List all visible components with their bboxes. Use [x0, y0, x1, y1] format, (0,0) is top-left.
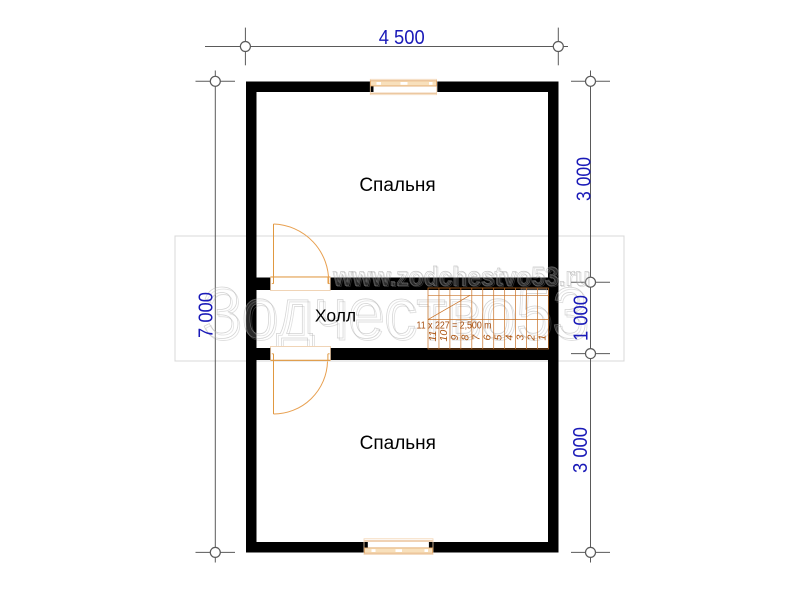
svg-text:3 000: 3 000	[570, 427, 592, 473]
svg-text:4 500: 4 500	[379, 27, 425, 49]
svg-text:1 000: 1 000	[571, 295, 593, 341]
svg-text:7 000: 7 000	[196, 292, 218, 338]
svg-text:Зодчество53: Зодчество53	[202, 274, 588, 354]
svg-text:Спальня: Спальня	[359, 175, 435, 196]
svg-text:3 000: 3 000	[574, 157, 596, 201]
svg-text:11 x 227 = 2,500 m: 11 x 227 = 2,500 m	[417, 321, 492, 332]
svg-text:1: 1	[536, 335, 548, 341]
svg-text:Холл: Холл	[315, 306, 356, 326]
svg-text:Спальня: Спальня	[360, 433, 436, 454]
